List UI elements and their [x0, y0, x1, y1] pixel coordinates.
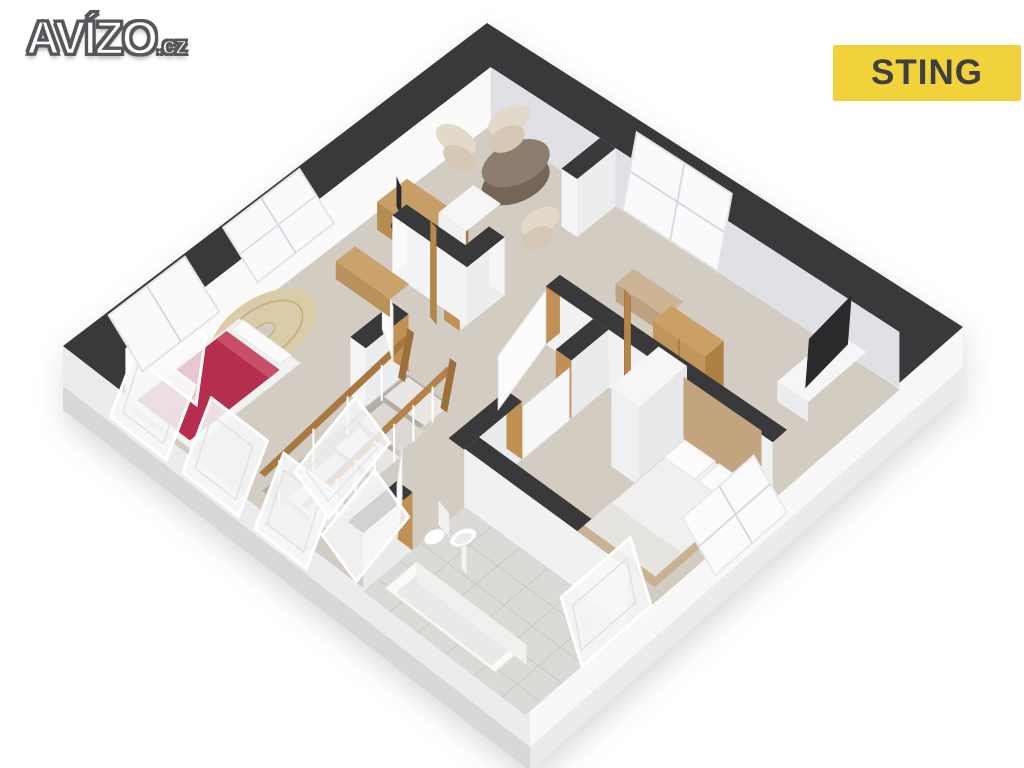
avizo-logo-suffix: .cz	[156, 32, 186, 60]
wall-stub-cap	[562, 169, 578, 237]
wood-column	[430, 221, 436, 324]
sting-watermark-badge: STING	[833, 45, 1021, 101]
avizo-logo: AVÍZO.cz	[26, 10, 187, 65]
avizo-logo-text: AVÍZO	[26, 11, 156, 64]
floor-plan-3d-render	[0, 0, 1024, 768]
wall-a2-cap	[350, 337, 366, 406]
listing-image: AVÍZO.cz STING	[0, 0, 1024, 768]
